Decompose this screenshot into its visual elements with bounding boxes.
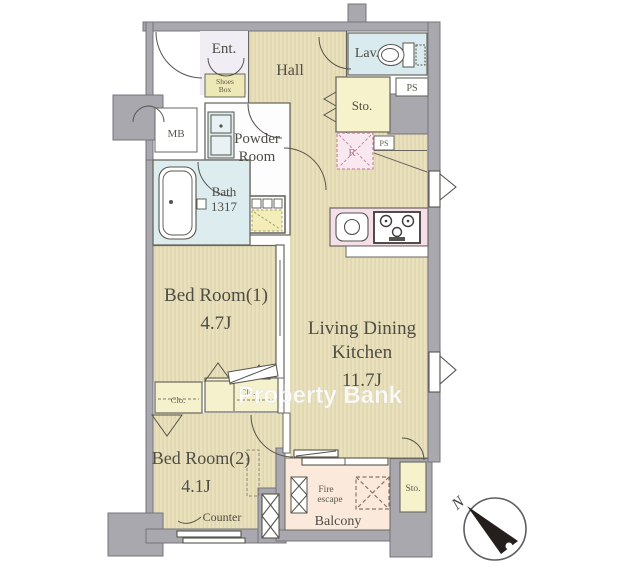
meter-box-label: MB — [167, 128, 184, 140]
washbasin-icon — [208, 112, 234, 158]
window-right-lower-flag — [440, 356, 456, 384]
bedroom2-window-a — [177, 531, 241, 537]
bedroom1-label: Bed Room(1) — [164, 285, 268, 306]
pipe-space-mid-label: PS — [380, 139, 389, 148]
wall-bedroom2-ldk — [283, 413, 290, 453]
fire-escape-label-1: Fire — [318, 485, 333, 495]
powder-room-label-1: Powder — [234, 131, 280, 147]
storage-upper-label: Sto. — [352, 98, 373, 113]
wall-left-upper — [146, 22, 153, 162]
wall-top — [143, 22, 440, 31]
ldk-label-1: Living Dining — [308, 318, 417, 339]
bedroom1-size: 4.7J — [200, 313, 231, 334]
lavatory-label: Lav. — [355, 46, 379, 61]
pipe-space-top-label: PS — [406, 83, 417, 94]
shoes-box-label-2: Box — [219, 85, 232, 94]
window-right-lower — [429, 352, 440, 392]
floor-plan-drawing: Ent. Shoes Box Hall Lav. PS Sto. MB Powd… — [0, 0, 640, 569]
sink-icon — [336, 213, 368, 241]
fire-escape-hatch-icon — [291, 477, 307, 513]
fire-escape-label-2: escape — [317, 495, 342, 505]
counter-label: Counter — [203, 510, 242, 524]
hall-label: Hall — [276, 62, 304, 79]
entrance-label: Ent. — [212, 41, 237, 57]
property-bank-watermark: Property Bank — [238, 382, 403, 409]
compass-icon: N — [448, 493, 526, 560]
wall-top-protrusion — [348, 4, 366, 23]
wall-right — [428, 22, 440, 462]
wall-balcony-bottom — [276, 530, 395, 541]
bedroom2-window-b — [183, 538, 245, 543]
window-right-upper-flag — [440, 174, 456, 200]
compass-north-label: N — [448, 493, 469, 514]
entrance-door-arc — [156, 32, 202, 78]
balcony-label: Balcony — [315, 514, 362, 529]
bath-label-1: Bath — [212, 184, 237, 199]
bedroom2-label: Bed Room(2) — [152, 448, 251, 469]
refrigerator-label: R — [348, 147, 356, 159]
ldk-label-2: Kitchen — [332, 342, 393, 363]
louver-window — [262, 494, 279, 538]
wall-block-upper-right — [388, 94, 428, 134]
storage-lower-label: Sto. — [405, 484, 420, 494]
washing-machine-pan — [249, 196, 285, 233]
floor-plan-page: Ent. Shoes Box Hall Lav. PS Sto. MB Powd… — [0, 0, 640, 569]
window-right-upper — [429, 171, 440, 207]
stove-icon — [374, 212, 420, 243]
counter-front — [346, 246, 428, 257]
powder-room-label-2: Room — [239, 149, 276, 165]
closet-left-label: Clo. — [171, 395, 185, 405]
bedroom2-size: 4.1J — [181, 476, 211, 496]
bath-label-2: 1317 — [211, 199, 238, 214]
